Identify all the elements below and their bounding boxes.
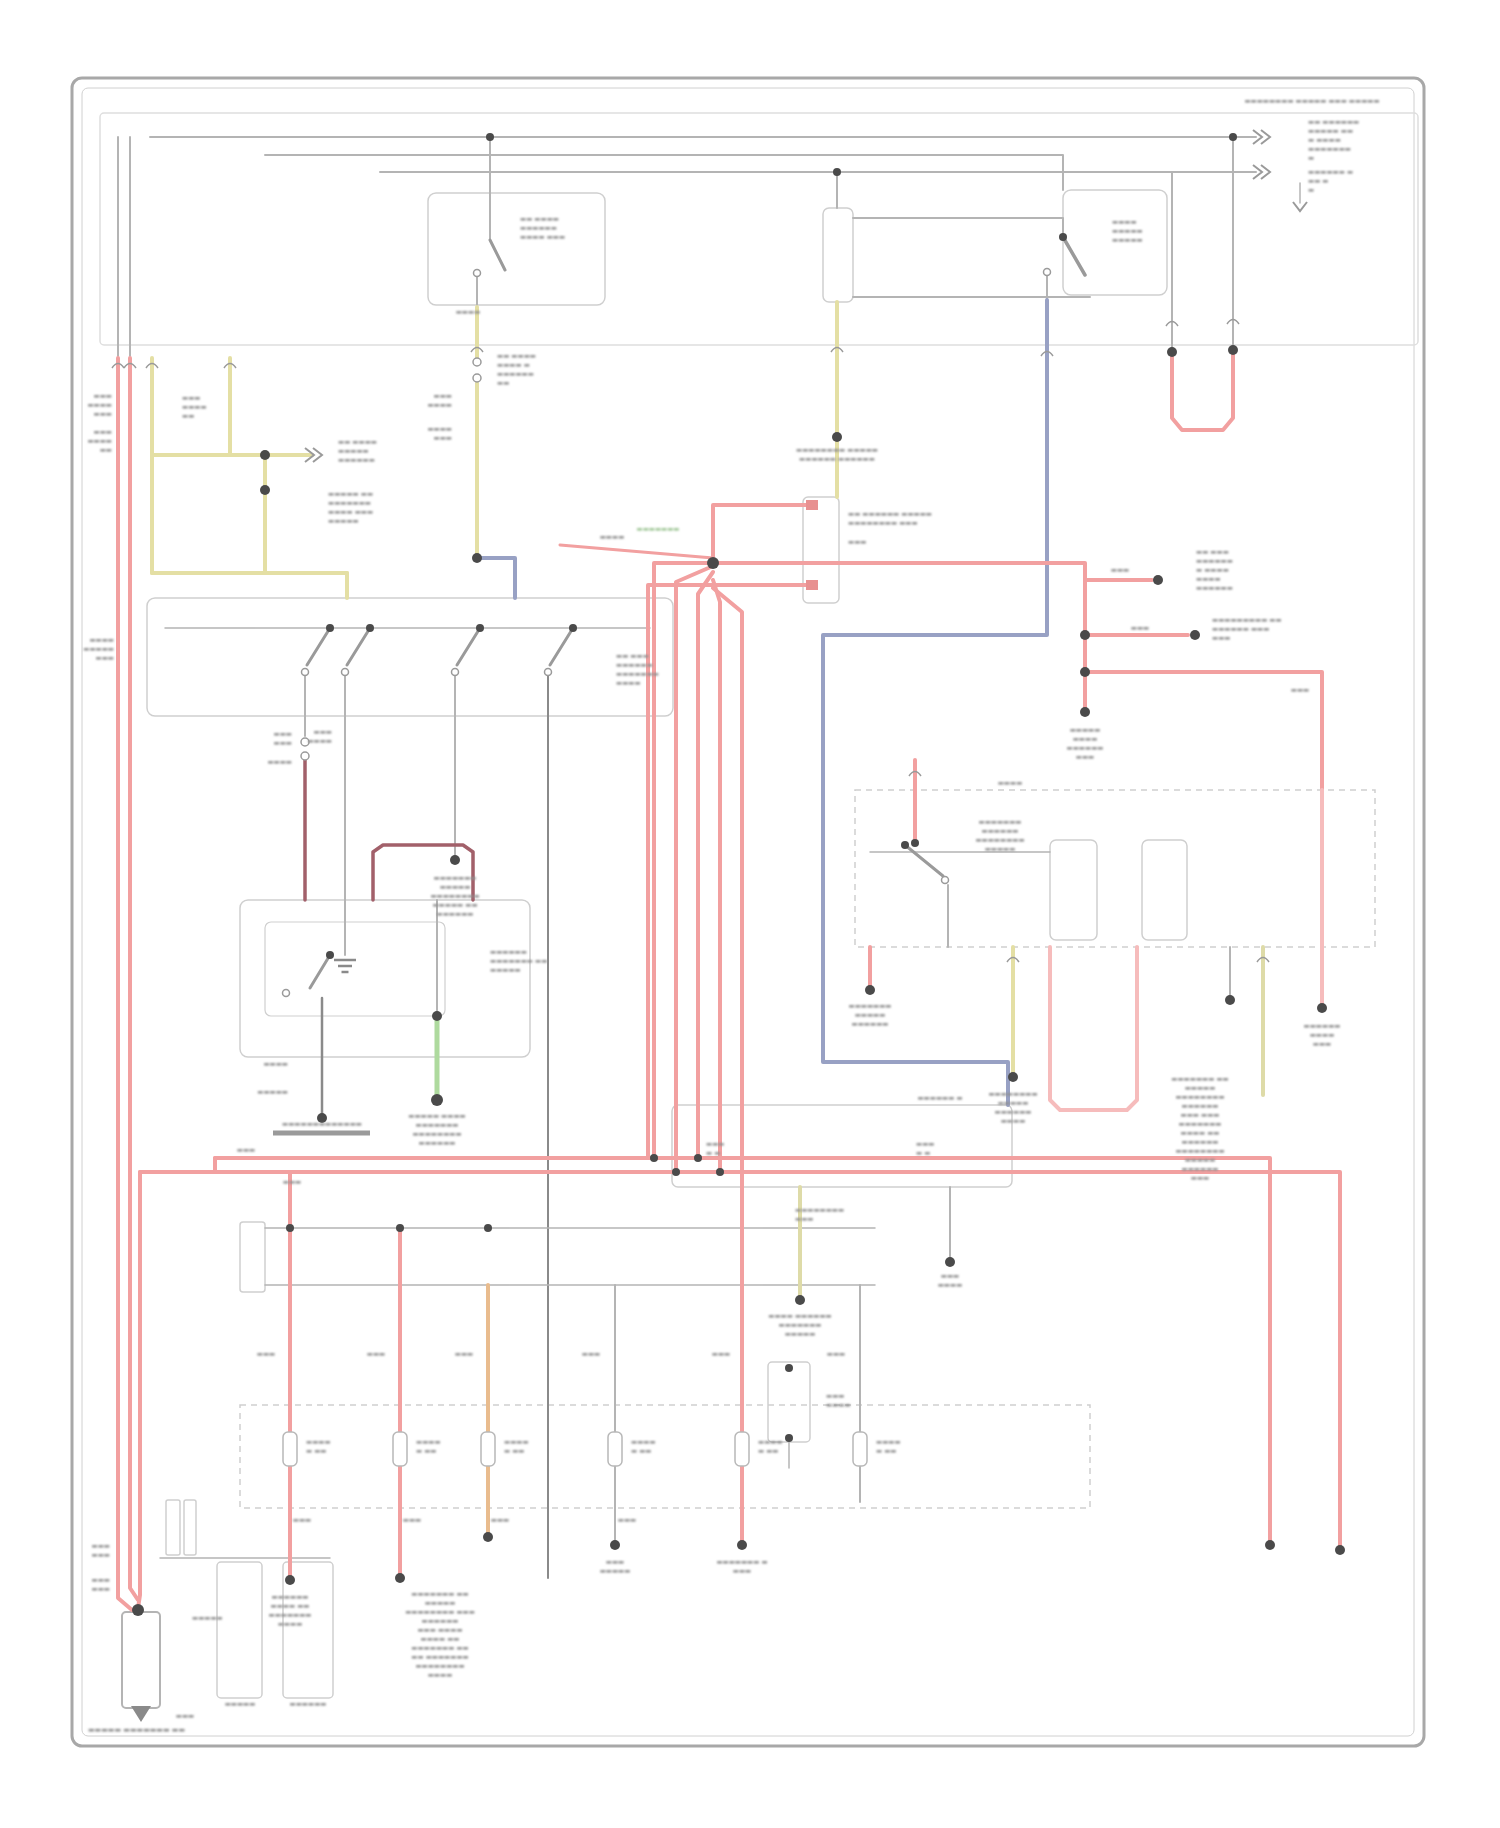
junction-dot-44 xyxy=(132,1604,144,1616)
blurred-label-36: ▬▬▬▬▬▬▬ ▬▬▬▬▬▬ ▬▬▬▬▬▬▬▬ ▬▬▬▬▬ xyxy=(975,818,1024,854)
wire-gray2-33 xyxy=(490,240,505,270)
junction-dot-43 xyxy=(1335,1545,1345,1555)
junction-dot-2 xyxy=(1229,133,1237,141)
junction-dot-27 xyxy=(450,855,460,865)
junction-dot-32 xyxy=(484,1224,492,1232)
blurred-label-23: ▬▬▬ xyxy=(1291,686,1309,695)
blurred-label-25: ▬▬ ▬▬▬ ▬▬▬▬▬▬ ▬▬▬▬▬▬▬ ▬▬▬▬ xyxy=(616,652,659,688)
junction-dot-45 xyxy=(1167,347,1177,357)
junction-dot-5 xyxy=(326,624,334,632)
blurred-label-13: ▬▬▬▬▬ ▬▬ ▬▬▬▬▬▬▬ ▬▬▬▬ ▬▬▬ ▬▬▬▬▬ xyxy=(328,490,373,526)
blurred-label-24: ▬▬▬▬▬ ▬▬▬▬ ▬▬▬▬▬▬ ▬▬▬ xyxy=(1067,726,1104,762)
blurred-label-2: ▬▬▬▬▬▬ ▬ ▬▬ ▬ ▬ xyxy=(1308,168,1353,195)
junction-dot-11 xyxy=(260,485,270,495)
wire-gray2-39 xyxy=(310,955,330,988)
blurred-label-73: ▬▬▬▬▬ xyxy=(192,1614,223,1623)
junction-dot-4 xyxy=(901,841,909,849)
contact-circle-7 xyxy=(545,669,552,676)
contact-circle-0 xyxy=(474,270,481,277)
blurred-label-20: ▬▬▬ xyxy=(1111,566,1129,575)
blurred-label-21: ▬▬▬▬▬▬▬▬▬ ▬▬ ▬▬▬▬▬▬ ▬▬▬ ▬▬▬ xyxy=(1212,616,1282,643)
junction-dot-18 xyxy=(1080,667,1090,677)
component-box-13 xyxy=(122,1612,160,1708)
junction-dot-22 xyxy=(1225,995,1235,1005)
junction-dot-28 xyxy=(795,1295,805,1305)
contact-circle-6 xyxy=(452,669,459,676)
component-box-15 xyxy=(184,1500,196,1555)
junction-dot-35 xyxy=(694,1154,702,1162)
junction-dot-0 xyxy=(486,133,494,141)
blurred-label-30: ▬▬▬▬▬▬▬ ▬▬▬▬▬ ▬▬▬▬▬▬▬▬ ▬▬▬▬▬ ▬▬ ▬▬▬▬▬▬ xyxy=(430,874,479,919)
wire-salmon-74 xyxy=(698,572,713,1158)
wire-gray2-35 xyxy=(307,628,330,665)
blurred-label-43: ▬▬▬ ▬ ▬ xyxy=(706,1140,724,1158)
wire-blue-56 xyxy=(477,558,515,598)
component-box-11 xyxy=(240,1222,265,1292)
component-box-2 xyxy=(823,208,853,302)
component-box-14 xyxy=(166,1500,180,1555)
wire-salmon-80 xyxy=(138,1172,140,1608)
blurred-label-19: ▬▬ ▬▬▬ ▬▬▬▬▬▬ ▬ ▬▬▬▬ ▬▬▬▬ ▬▬▬▬▬▬ xyxy=(1196,548,1233,593)
junction-dot-19 xyxy=(1080,707,1090,717)
wiring-diagram-canvas xyxy=(0,0,1500,1828)
terminal-pad-1 xyxy=(806,580,818,590)
blurred-label-64: ▬▬▬ xyxy=(491,1516,509,1525)
junction-dot-26 xyxy=(431,1094,443,1106)
junction-dot-20 xyxy=(865,985,875,995)
blurred-label-33: ▬▬▬▬▬ xyxy=(257,1088,288,1097)
blurred-label-74: ▬▬▬▬▬ xyxy=(225,1700,256,1709)
blurred-label-45: ▬▬▬▬ ▬▬▬▬▬▬ ▬▬▬▬▬▬▬ ▬▬▬▬▬ xyxy=(768,1312,831,1339)
contact-circle-4 xyxy=(302,669,309,676)
component-box-7 xyxy=(265,922,445,1016)
junction-dot-13 xyxy=(832,432,842,442)
blurred-label-39: ▬▬▬▬▬▬▬▬ ▬▬▬▬▬ ▬▬▬▬▬▬ ▬▬▬▬ xyxy=(988,1090,1037,1126)
blurred-label-4: ▬▬▬▬ xyxy=(456,308,481,317)
blurred-label-28: ▬▬▬▬ xyxy=(267,758,292,767)
junction-dot-41 xyxy=(737,1540,747,1550)
blurred-label-58: ▬▬▬▬ ▬ ▬▬ xyxy=(504,1438,529,1456)
component-box-1 xyxy=(428,193,605,305)
blurred-label-27: ▬▬▬ ▬▬▬ xyxy=(274,730,292,748)
blurred-label-37: ▬▬▬▬ xyxy=(998,779,1023,788)
junction-dot-25 xyxy=(432,1011,442,1021)
blurred-label-56: ▬▬▬▬ ▬ ▬▬ xyxy=(306,1438,331,1456)
junction-dot-1 xyxy=(833,168,841,176)
blurred-label-42: ▬▬▬▬▬▬ ▬ xyxy=(917,1094,962,1103)
blurred-label-41: ▬▬▬▬▬▬ ▬▬▬▬ ▬▬▬ xyxy=(1304,1022,1341,1049)
blurred-label-69: ▬▬▬▬▬▬▬ ▬ ▬▬▬ xyxy=(716,1558,767,1576)
junction-dot-39 xyxy=(483,1532,493,1542)
junction-dot-48 xyxy=(785,1434,793,1442)
blurred-label-75: ▬▬▬▬▬▬ xyxy=(290,1700,327,1709)
junction-dot-17 xyxy=(1190,630,1200,640)
page-border-0 xyxy=(72,78,1424,1746)
junction-dot-16 xyxy=(1080,630,1090,640)
junction-dot-29 xyxy=(945,1257,955,1267)
wire-salmon-65 xyxy=(648,585,806,1158)
blurred-label-6: ▬▬▬ ▬▬▬▬ ▬▬▬ xyxy=(87,392,112,419)
component-box-5 xyxy=(147,598,673,716)
wire-salmon-72 xyxy=(654,563,713,1158)
wire-gray2-38 xyxy=(550,628,573,665)
wire-salmon-66 xyxy=(560,545,713,558)
junction-dot-12 xyxy=(472,553,482,563)
blurred-label-17: ▬▬▬▬▬▬▬ xyxy=(637,525,680,534)
blurred-label-60: ▬▬▬▬ ▬ ▬▬ xyxy=(758,1438,783,1456)
wire-salmon-62 xyxy=(130,358,138,1600)
wire-salmon-70 xyxy=(1085,672,1322,790)
fuse-icon-4 xyxy=(735,1432,749,1466)
junction-dot-9 xyxy=(326,951,334,959)
blurred-label-29: ▬▬▬ ▬▬▬▬ xyxy=(307,728,332,746)
junction-dot-49 xyxy=(911,839,919,847)
blurred-label-22: ▬▬▬ xyxy=(1131,624,1149,633)
blurred-label-55: ▬▬▬ xyxy=(827,1350,845,1359)
wire-gray2-40 xyxy=(905,845,943,876)
battery-arrow-icon xyxy=(131,1706,151,1722)
contact-circle-1 xyxy=(1044,269,1051,276)
wire-salmon-75 xyxy=(713,580,720,1172)
blurred-label-1: ▬▬ ▬▬▬▬▬▬ ▬▬▬▬▬ ▬▬ ▬ ▬▬▬▬ ▬▬▬▬▬▬▬ ▬ xyxy=(1308,118,1359,163)
component-box-8 xyxy=(1050,840,1097,940)
junction-dot-3 xyxy=(1059,233,1067,241)
blurred-label-10: ▬▬▬ ▬▬▬▬ xyxy=(427,392,452,410)
junction-dot-37 xyxy=(285,1575,295,1585)
contact-circle-3 xyxy=(942,877,949,884)
junction-dot-40 xyxy=(610,1540,620,1550)
blurred-label-3: ▬▬ ▬▬▬▬ ▬▬▬▬▬▬ ▬▬▬▬ ▬▬▬ xyxy=(520,215,565,242)
component-box-6 xyxy=(240,900,530,1057)
junction-dot-23 xyxy=(1317,1003,1327,1013)
blurred-label-52: ▬▬▬ xyxy=(455,1350,473,1359)
page-border-1 xyxy=(82,88,1414,1736)
blurred-label-38: ▬▬▬▬▬▬▬ ▬▬▬▬▬ ▬▬▬▬▬▬ xyxy=(849,1002,892,1029)
fuse-icon-5 xyxy=(853,1432,867,1466)
blurred-label-7: ▬▬▬ ▬▬▬▬ ▬▬ xyxy=(87,428,112,455)
component-box-9 xyxy=(1142,840,1187,940)
component-box-0 xyxy=(100,113,1418,345)
blurred-label-34: ▬▬▬▬▬▬▬▬▬▬▬▬▬ xyxy=(282,1120,362,1129)
blurred-label-66: ▬▬▬▬▬▬ ▬▬▬▬ ▬▬ ▬▬▬▬▬▬▬ ▬▬▬▬ xyxy=(269,1593,312,1629)
junction-dot-10 xyxy=(260,450,270,460)
blurred-label-47: ▬▬▬ xyxy=(283,1178,301,1187)
blurred-label-70: ▬▬▬ ▬▬▬▬ xyxy=(826,1392,851,1410)
blurred-label-77: ▬▬▬▬▬ ▬▬▬▬▬▬▬ ▬▬ xyxy=(88,1726,185,1735)
junction-dot-46 xyxy=(1228,345,1238,355)
blurred-label-0: ▬▬▬▬▬▬▬▬ ▬▬▬▬▬ ▬▬▬ ▬▬▬▬▬ xyxy=(1244,97,1379,106)
wire-salmonL-82 xyxy=(1050,947,1137,1110)
junction-dot-30 xyxy=(286,1224,294,1232)
blurred-label-46: ▬▬▬ ▬▬▬▬ xyxy=(938,1272,963,1290)
junction-dot-42 xyxy=(1265,1540,1275,1550)
blurred-label-68: ▬▬▬ ▬▬▬▬▬ xyxy=(600,1558,631,1576)
junction-dot-6 xyxy=(366,624,374,632)
blurred-label-62: ▬▬▬ xyxy=(293,1516,311,1525)
blurred-label-15: ▬▬ ▬▬▬▬▬▬ ▬▬▬▬▬ ▬▬▬▬▬▬▬▬ ▬▬▬ xyxy=(848,510,932,528)
blurred-label-40: ▬▬▬▬▬▬▬ ▬▬ ▬▬▬▬▬ ▬▬▬▬▬▬▬▬ ▬▬▬▬▬▬ ▬▬▬ ▬▬▬… xyxy=(1171,1075,1228,1183)
blurred-label-61: ▬▬▬▬ ▬ ▬▬ xyxy=(876,1438,901,1456)
junction-dot-36 xyxy=(716,1168,724,1176)
blurred-label-54: ▬▬▬ xyxy=(712,1350,730,1359)
blurred-label-35: ▬▬▬▬▬ ▬▬▬▬ ▬▬▬▬▬▬▬ ▬▬▬▬▬▬▬▬ ▬▬▬▬▬▬ xyxy=(408,1112,465,1148)
wire-salmon-76 xyxy=(713,588,742,1432)
junction-dot-7 xyxy=(476,624,484,632)
contact-circle-2 xyxy=(283,990,290,997)
wiring-diagram-page: ▬▬▬▬▬▬▬▬ ▬▬▬▬▬ ▬▬▬ ▬▬▬▬▬▬▬ ▬▬▬▬▬▬ ▬▬▬▬▬ … xyxy=(0,0,1500,1828)
wire-gray2-34 xyxy=(1063,237,1085,275)
contact-circle-5 xyxy=(342,669,349,676)
terminal-pad-0 xyxy=(806,500,818,510)
blurred-label-5: ▬▬▬▬ ▬▬▬▬▬ ▬▬▬▬▬ xyxy=(1112,218,1143,245)
blurred-label-12: ▬▬ ▬▬▬▬ ▬▬▬▬▬ ▬▬▬▬▬▬ xyxy=(338,438,377,465)
blurred-label-8: ▬▬▬ ▬▬▬▬ ▬▬ xyxy=(182,394,207,421)
dashed-box-1 xyxy=(240,1405,1090,1508)
junction-dot-8 xyxy=(569,624,577,632)
blurred-label-59: ▬▬▬▬ ▬ ▬▬ xyxy=(631,1438,656,1456)
blurred-label-9: ▬▬ ▬▬▬▬ ▬▬▬▬ ▬ ▬▬▬▬▬▬ ▬▬ xyxy=(497,352,536,388)
contact-circle-11 xyxy=(301,752,309,760)
junction-dot-38 xyxy=(395,1573,405,1583)
wire-gray-5 xyxy=(853,218,1063,237)
fuse-icon-3 xyxy=(608,1432,622,1466)
blurred-label-26: ▬▬▬▬ ▬▬▬▬▬ ▬▬▬ xyxy=(83,636,114,663)
junction-dot-33 xyxy=(650,1154,658,1162)
blurred-label-50: ▬▬▬ xyxy=(257,1350,275,1359)
wire-gray2-36 xyxy=(347,628,370,665)
junction-dot-31 xyxy=(396,1224,404,1232)
blurred-label-32: ▬▬▬▬ xyxy=(263,1060,288,1069)
blurred-label-44: ▬▬▬ ▬ ▬ xyxy=(916,1140,934,1158)
junction-dot-15 xyxy=(1153,575,1163,585)
blurred-label-76: ▬▬▬ xyxy=(176,1712,194,1721)
junction-dot-47 xyxy=(785,1364,793,1372)
blurred-label-67: ▬▬▬▬▬▬▬ ▬▬ ▬▬▬▬▬ ▬▬▬▬▬▬▬▬ ▬▬▬ ▬▬▬▬▬▬ ▬▬▬… xyxy=(405,1590,475,1680)
blurred-label-14: ▬▬▬▬▬▬▬▬ ▬▬▬▬▬ ▬▬▬▬▬▬ ▬▬▬▬▬▬ xyxy=(796,446,878,464)
blurred-label-51: ▬▬▬ xyxy=(367,1350,385,1359)
blurred-label-71: ▬▬▬ ▬▬▬ xyxy=(92,1542,110,1560)
wire-salmon-73 xyxy=(676,566,713,1172)
blurred-label-65: ▬▬▬ xyxy=(618,1516,636,1525)
blurred-label-53: ▬▬▬ xyxy=(582,1350,600,1359)
fuse-icon-1 xyxy=(393,1432,407,1466)
blurred-label-48: ▬▬▬ xyxy=(237,1146,255,1155)
wire-salmon-64 xyxy=(713,505,806,563)
fuse-icon-2 xyxy=(481,1432,495,1466)
component-box-12 xyxy=(768,1362,810,1442)
wire-salmon-63 xyxy=(1172,350,1233,430)
blurred-label-11: ▬▬▬▬ ▬▬▬ xyxy=(427,425,452,443)
blurred-label-63: ▬▬▬ xyxy=(403,1516,421,1525)
blurred-label-18: ▬▬▬▬ xyxy=(600,533,625,542)
blurred-label-57: ▬▬▬▬ ▬ ▬▬ xyxy=(416,1438,441,1456)
component-box-16 xyxy=(217,1562,262,1698)
blurred-label-72: ▬▬▬ ▬▬▬ xyxy=(92,1576,110,1594)
junction-dot-34 xyxy=(672,1168,680,1176)
junction-dot-14 xyxy=(707,557,719,569)
blurred-label-31: ▬▬▬▬▬▬ ▬▬▬▬▬▬▬ ▬▬ ▬▬▬▬▬ xyxy=(490,948,547,975)
blurred-label-16: ▬▬▬ xyxy=(848,538,866,547)
contact-circle-8 xyxy=(473,358,481,366)
blurred-label-49: ▬▬▬▬▬▬▬▬ ▬▬▬ xyxy=(795,1206,844,1224)
junction-dot-21 xyxy=(1008,1072,1018,1082)
contact-circle-9 xyxy=(473,374,481,382)
fuse-icon-0 xyxy=(283,1432,297,1466)
wire-gray2-37 xyxy=(457,628,480,665)
